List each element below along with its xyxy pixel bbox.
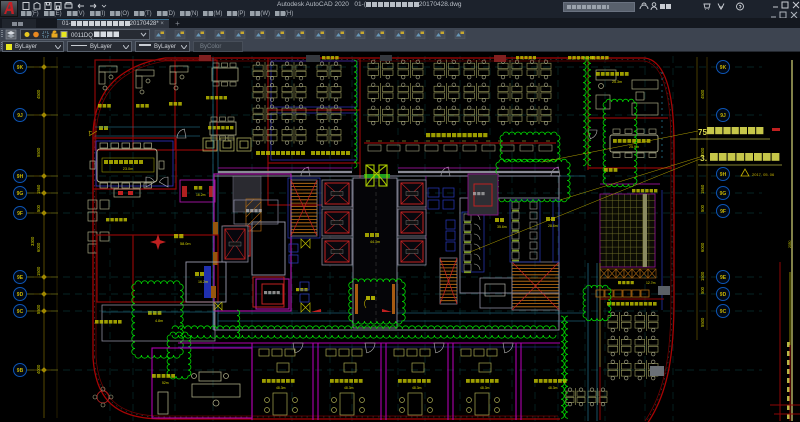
svg-text:1560: 1560 [36, 184, 41, 194]
svg-text:25.9m: 25.9m [629, 145, 639, 149]
svg-text:9C: 9C [720, 309, 727, 315]
svg-text:58.0m: 58.0m [180, 242, 191, 246]
svg-text:35.6m: 35.6m [497, 225, 507, 229]
svg-text:9F: 9F [17, 211, 23, 217]
svg-text:9B: 9B [17, 368, 24, 374]
svg-text:9K: 9K [720, 65, 727, 71]
svg-text:5500: 5500 [36, 304, 41, 314]
svg-text:48.3m: 48.3m [548, 386, 558, 390]
svg-text:6000: 6000 [700, 242, 705, 252]
svg-text:9G: 9G [720, 191, 727, 197]
svg-text:9E: 9E [17, 275, 24, 281]
svg-text:52m: 52m [162, 381, 169, 385]
svg-text:500: 500 [36, 204, 41, 212]
svg-text:44.3m: 44.3m [370, 240, 380, 244]
svg-text:48.3m: 48.3m [276, 386, 286, 390]
svg-text:4.8m: 4.8m [155, 319, 163, 323]
svg-text:16.2m: 16.2m [196, 193, 206, 197]
svg-text:4000: 4000 [36, 364, 41, 374]
svg-text:9E: 9E [720, 275, 727, 281]
svg-text:48.3m: 48.3m [480, 386, 490, 390]
svg-text:16.2m: 16.2m [198, 280, 208, 284]
svg-text:2350: 2350 [788, 240, 792, 248]
svg-text:25.3m: 25.3m [612, 80, 622, 84]
svg-text:3.: 3. [700, 153, 707, 163]
svg-text:9J: 9J [17, 113, 23, 119]
svg-text:9D: 9D [17, 292, 24, 298]
svg-text:4500: 4500 [36, 89, 41, 99]
svg-text:4500: 4500 [700, 89, 705, 99]
svg-text:9H: 9H [17, 174, 24, 180]
svg-text:5500: 5500 [36, 147, 41, 157]
svg-text:3300: 3300 [30, 236, 35, 246]
svg-text:6000: 6000 [36, 242, 41, 252]
svg-text:9F: 9F [720, 209, 726, 215]
svg-text:12.7m: 12.7m [646, 281, 656, 285]
svg-text:9J: 9J [720, 113, 726, 119]
svg-text:5500: 5500 [700, 317, 705, 327]
svg-text:28.6m: 28.6m [548, 224, 558, 228]
svg-text:9C: 9C [17, 309, 24, 315]
svg-text:500: 500 [700, 286, 705, 294]
svg-text:2017. 05. 06: 2017. 05. 06 [752, 172, 775, 177]
svg-text:9G: 9G [17, 191, 24, 197]
svg-text:48.3m: 48.3m [412, 386, 422, 390]
svg-text:1500: 1500 [700, 271, 705, 281]
svg-text:75: 75 [698, 128, 707, 137]
svg-text:1560: 1560 [700, 184, 705, 194]
svg-text:9K: 9K [17, 65, 24, 71]
svg-text:1500: 1500 [36, 266, 41, 276]
svg-text:23.0m: 23.0m [123, 167, 134, 171]
svg-text:9H: 9H [720, 172, 727, 178]
svg-text:0011DQ: 0011DQ [71, 33, 93, 39]
svg-text:9D: 9D [720, 292, 727, 298]
svg-text:500: 500 [700, 204, 705, 212]
svg-text:48.3m: 48.3m [344, 386, 354, 390]
